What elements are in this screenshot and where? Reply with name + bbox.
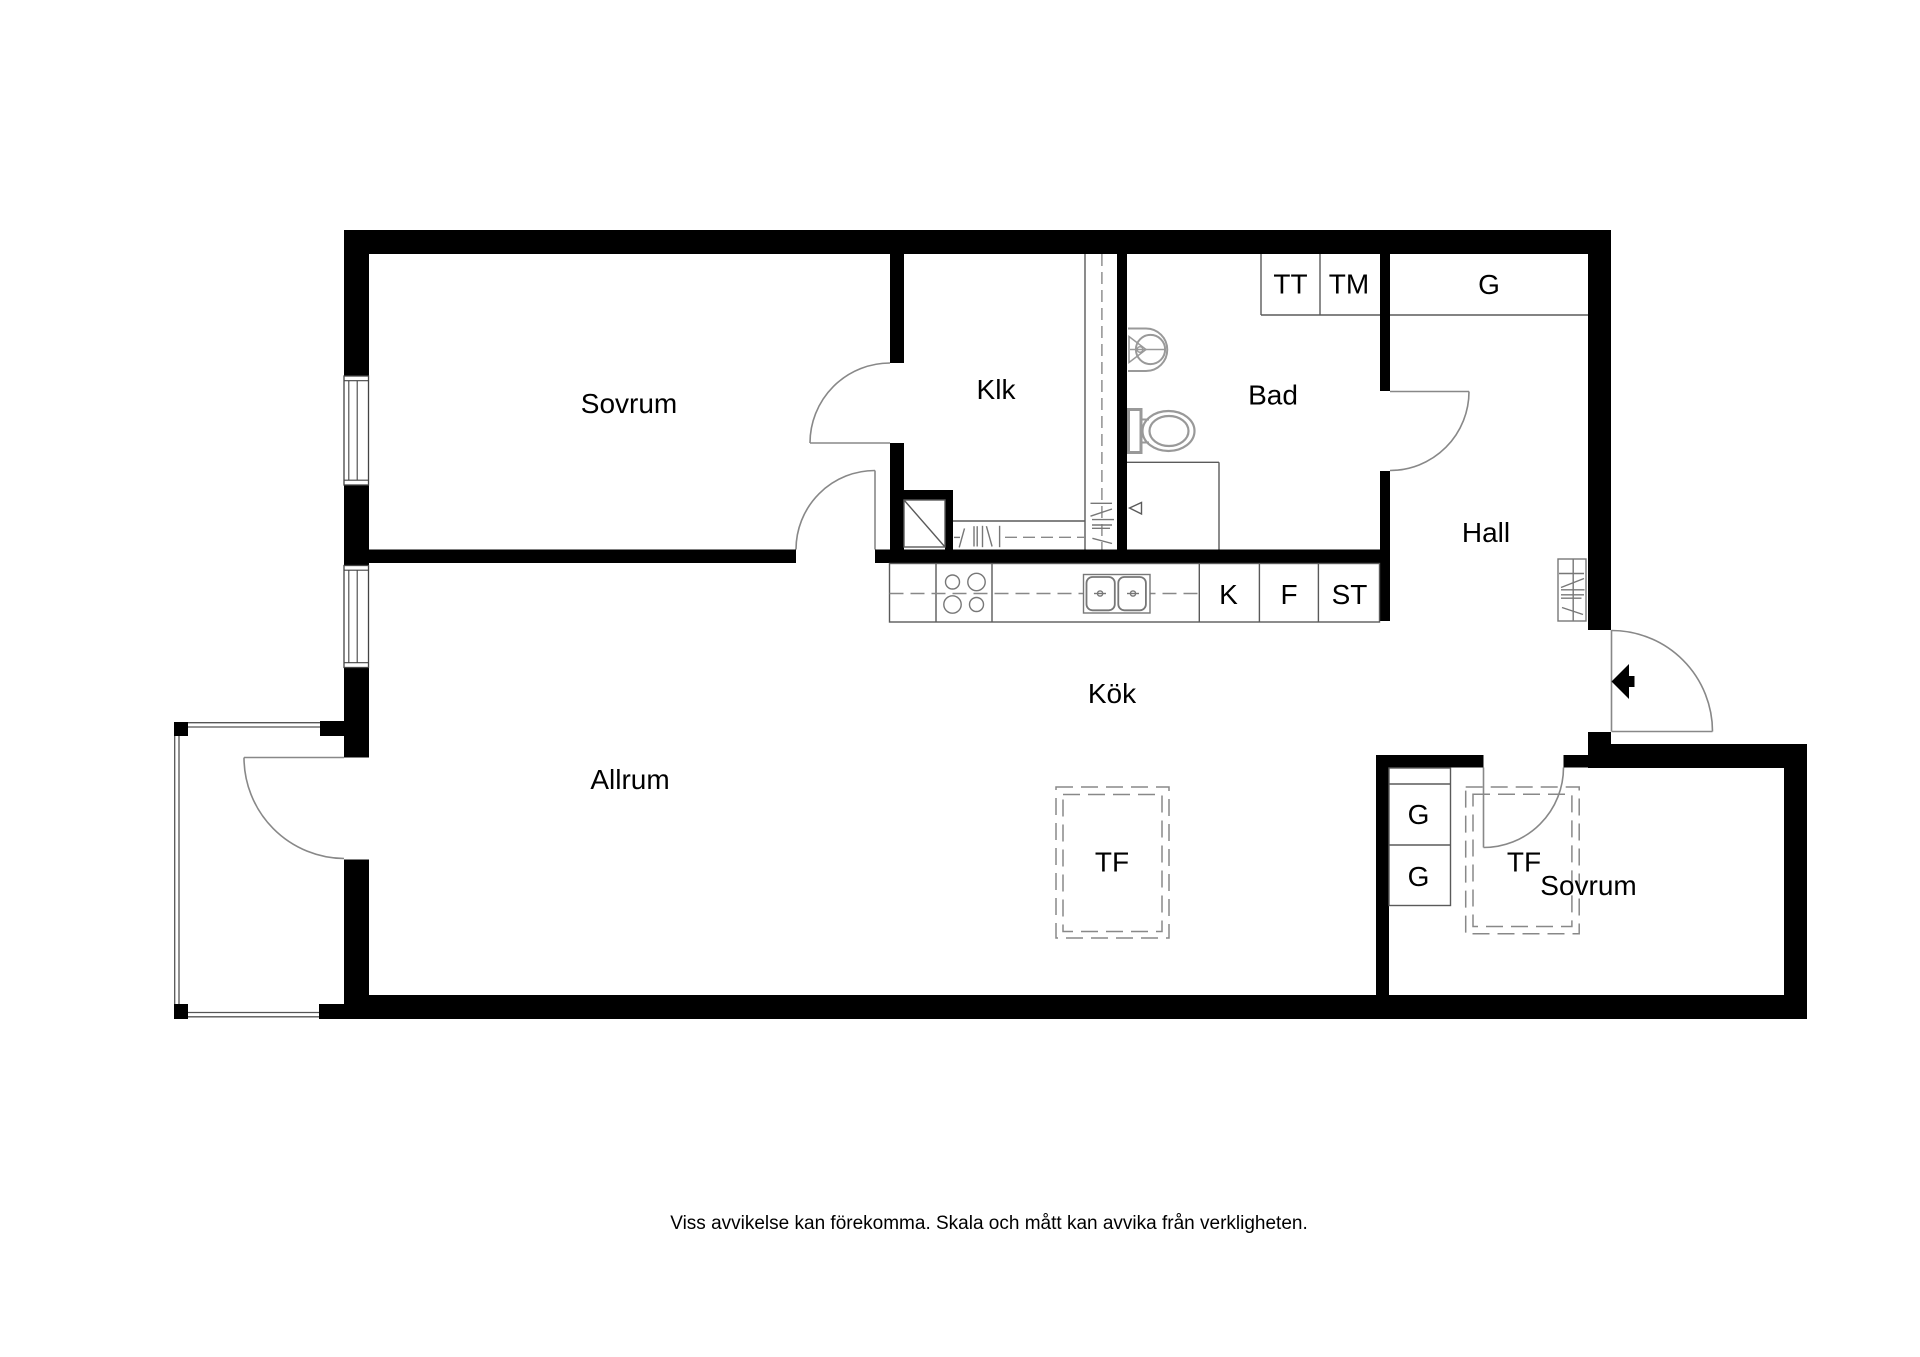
svg-text:Sovrum: Sovrum <box>1540 870 1636 901</box>
svg-text:G: G <box>1478 269 1500 300</box>
svg-text:Hall: Hall <box>1462 517 1510 548</box>
svg-text:Bad: Bad <box>1248 380 1298 411</box>
svg-text:TT: TT <box>1273 269 1307 300</box>
svg-text:G: G <box>1408 861 1430 892</box>
svg-text:F: F <box>1280 579 1297 610</box>
svg-text:TF: TF <box>1095 847 1129 878</box>
svg-text:Klk: Klk <box>977 374 1017 405</box>
svg-text:G: G <box>1408 799 1430 830</box>
svg-text:Sovrum: Sovrum <box>581 388 677 419</box>
svg-text:K: K <box>1219 579 1238 610</box>
svg-text:TM: TM <box>1329 269 1369 300</box>
svg-text:ST: ST <box>1332 579 1368 610</box>
svg-text:TF: TF <box>1507 847 1541 878</box>
svg-text:Viss avvikelse kan förekomma.: Viss avvikelse kan förekomma. Skala och … <box>670 1213 1308 1234</box>
svg-text:Kök: Kök <box>1088 678 1137 709</box>
svg-text:Allrum: Allrum <box>590 764 669 795</box>
